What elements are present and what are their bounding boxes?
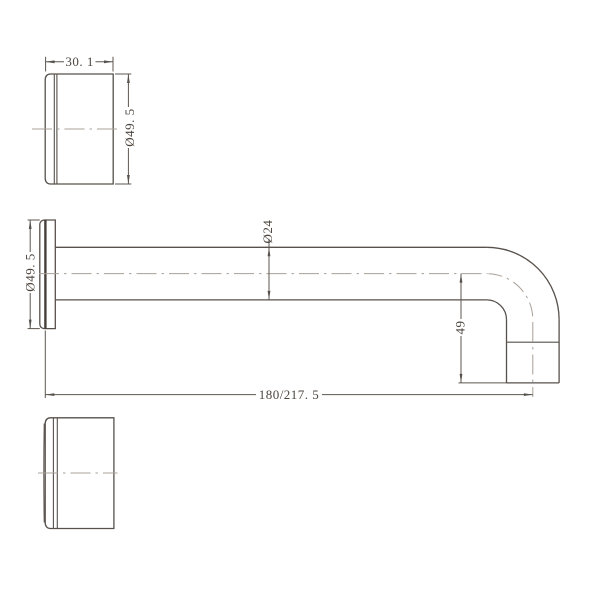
svg-text:49: 49 <box>453 321 468 335</box>
svg-text:180/217. 5: 180/217. 5 <box>259 387 320 402</box>
svg-text:Ø24: Ø24 <box>260 220 275 244</box>
svg-text:Ø49. 5: Ø49. 5 <box>122 108 137 146</box>
svg-text:Ø49. 5: Ø49. 5 <box>22 253 37 291</box>
svg-text:30. 1: 30. 1 <box>65 54 94 69</box>
